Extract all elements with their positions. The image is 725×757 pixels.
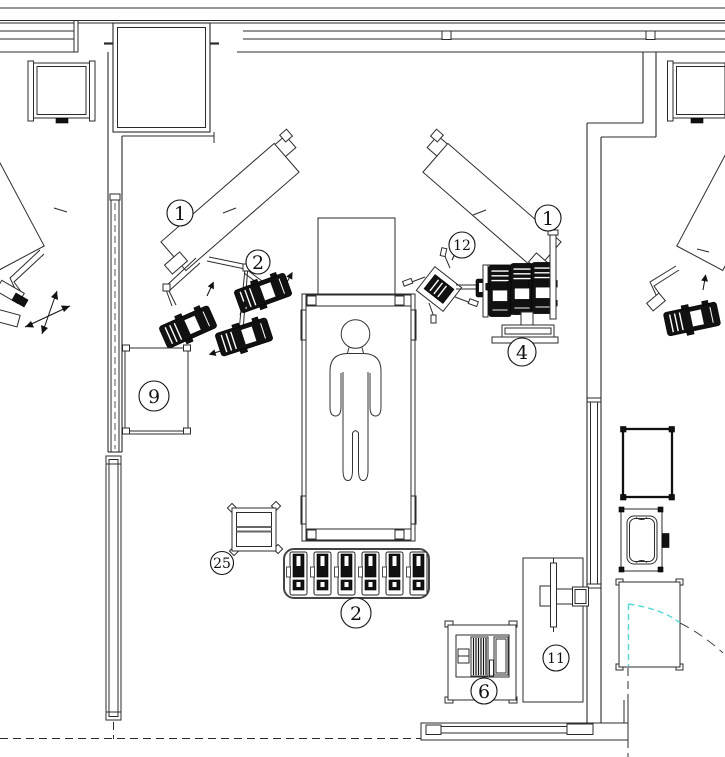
scrub-sink [619, 507, 669, 572]
door-swing-arc-outer [680, 623, 723, 653]
callout-2-bottom-label: 2 [350, 603, 362, 625]
operating-table [301, 218, 416, 541]
prep-table [621, 427, 675, 501]
axis-marker [25, 291, 70, 334]
monitor-top-right [668, 61, 725, 123]
manipulator-group-left [157, 257, 295, 360]
manipulator-tray [284, 549, 429, 598]
doorway-unit [616, 579, 723, 670]
treatment-table-right-room [677, 144, 725, 271]
adjacent-room-left [0, 144, 70, 334]
left-wall [108, 52, 122, 452]
sliding-door-left [106, 456, 121, 739]
floor-plan-page: 1 2 1 12 4 9 25 2 6 11 [0, 0, 725, 757]
callout-12-label: 12 [453, 238, 471, 254]
monitor-top-left [28, 61, 95, 123]
callout-1-left-label: 1 [174, 203, 186, 225]
adjacent-room-right [647, 144, 725, 340]
callout-9-label: 9 [148, 386, 160, 408]
callout-25-label: 25 [213, 556, 231, 572]
callout-6-label: 6 [478, 681, 490, 703]
instrument-cart [227, 501, 282, 555]
monitor-cart [523, 558, 589, 702]
callout-11-label: 11 [547, 651, 565, 667]
callout-1-right-label: 1 [542, 208, 554, 230]
callout-4-label: 4 [516, 342, 528, 364]
floor-plan-drawing: 1 2 1 12 4 9 25 2 6 11 [0, 0, 725, 757]
wall-column-notch [646, 31, 655, 40]
corner-room [104, 23, 219, 143]
table-pedestal [318, 218, 395, 294]
wall-column-notch [442, 31, 451, 40]
treatment-table-left-room [0, 144, 44, 271]
callout-2-top-label: 2 [252, 252, 264, 274]
bottom-door-track [421, 700, 628, 740]
